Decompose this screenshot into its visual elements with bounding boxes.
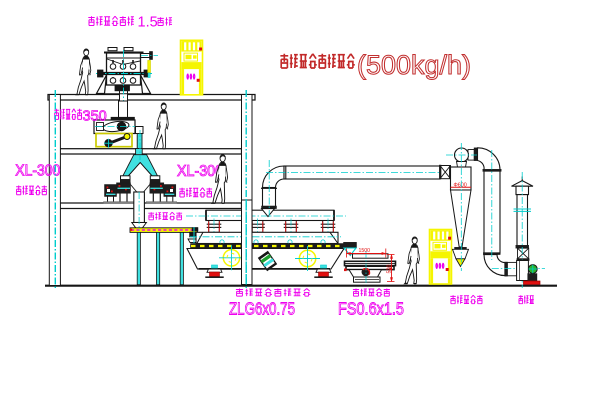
svg-text:XL-300: XL-300 <box>15 163 60 180</box>
svg-text:Φ600: Φ600 <box>454 182 467 188</box>
svg-text:1500: 1500 <box>359 248 371 254</box>
svg-text:500: 500 <box>386 265 392 274</box>
svg-text:350: 350 <box>83 109 107 125</box>
svg-text:1.5: 1.5 <box>138 15 158 31</box>
svg-text:FS0.6x1.5: FS0.6x1.5 <box>338 299 404 319</box>
svg-text:(500kg/h): (500kg/h) <box>357 50 471 80</box>
svg-text:ZLG6x0.75: ZLG6x0.75 <box>229 299 295 319</box>
